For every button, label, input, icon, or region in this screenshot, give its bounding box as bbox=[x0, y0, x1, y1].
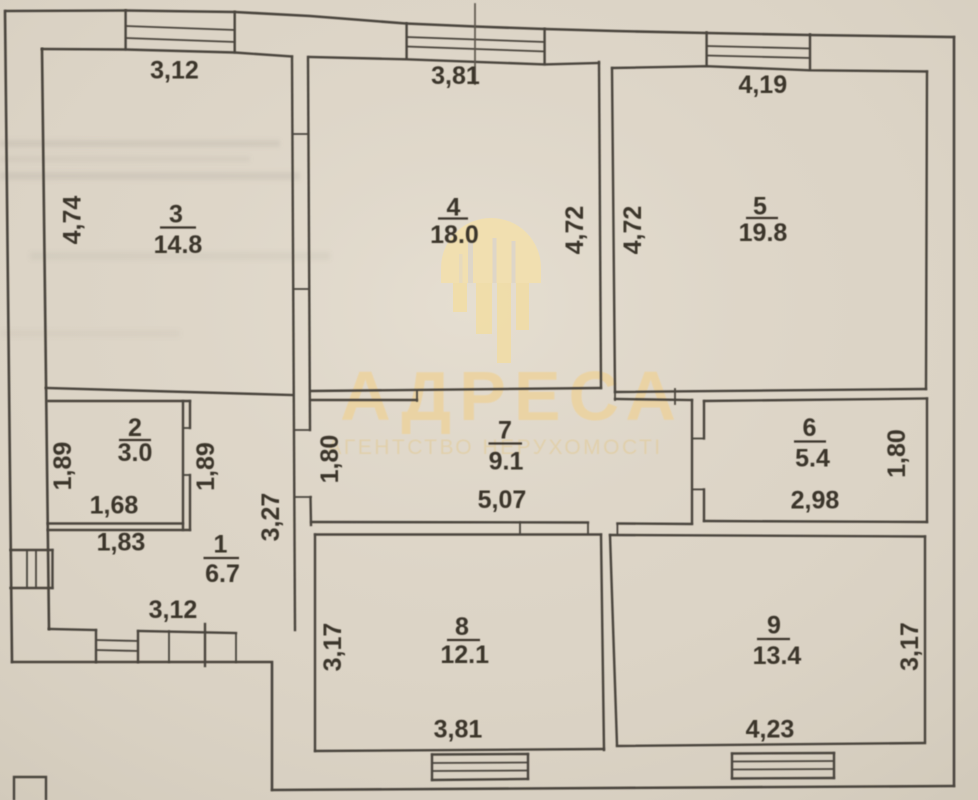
svg-text:4,74: 4,74 bbox=[59, 196, 87, 245]
svg-text:7: 7 bbox=[498, 417, 512, 445]
svg-text:9.1: 9.1 bbox=[489, 448, 524, 476]
svg-text:14.8: 14.8 bbox=[154, 231, 203, 259]
svg-text:1: 1 bbox=[214, 531, 228, 559]
svg-text:3,12: 3,12 bbox=[149, 596, 198, 624]
svg-text:5: 5 bbox=[753, 193, 767, 221]
svg-text:4,23: 4,23 bbox=[746, 716, 795, 744]
svg-text:4: 4 bbox=[447, 194, 461, 222]
svg-text:1,80: 1,80 bbox=[316, 435, 344, 484]
svg-text:5,07: 5,07 bbox=[478, 486, 527, 514]
svg-text:3,81: 3,81 bbox=[434, 716, 483, 744]
svg-text:АДРЕСА: АДРЕСА bbox=[340, 357, 684, 435]
svg-text:3,81: 3,81 bbox=[431, 62, 480, 90]
svg-text:2: 2 bbox=[128, 414, 142, 442]
svg-text:6.7: 6.7 bbox=[205, 560, 240, 588]
svg-text:6: 6 bbox=[803, 414, 817, 442]
svg-text:3,17: 3,17 bbox=[319, 623, 347, 672]
svg-text:9: 9 bbox=[767, 612, 781, 640]
svg-text:2,98: 2,98 bbox=[791, 487, 840, 515]
svg-text:1,83: 1,83 bbox=[97, 529, 146, 557]
svg-text:1,68: 1,68 bbox=[90, 492, 139, 520]
svg-text:5.4: 5.4 bbox=[795, 445, 830, 473]
svg-text:3,17: 3,17 bbox=[896, 622, 924, 671]
svg-text:18.0: 18.0 bbox=[430, 221, 479, 249]
svg-text:3.0: 3.0 bbox=[118, 439, 153, 467]
svg-text:13.4: 13.4 bbox=[753, 642, 802, 670]
svg-text:3,27: 3,27 bbox=[257, 493, 285, 542]
svg-text:1,80: 1,80 bbox=[883, 429, 911, 478]
svg-text:4,72: 4,72 bbox=[619, 206, 647, 255]
svg-text:8: 8 bbox=[455, 613, 469, 641]
svg-text:1,89: 1,89 bbox=[49, 442, 77, 491]
svg-text:3: 3 bbox=[169, 201, 183, 229]
svg-text:19.8: 19.8 bbox=[739, 219, 788, 247]
svg-text:12.1: 12.1 bbox=[440, 641, 489, 669]
svg-text:4,19: 4,19 bbox=[738, 71, 787, 99]
svg-text:3,12: 3,12 bbox=[150, 57, 199, 85]
svg-text:4,72: 4,72 bbox=[561, 206, 589, 255]
svg-text:1,89: 1,89 bbox=[192, 442, 220, 491]
